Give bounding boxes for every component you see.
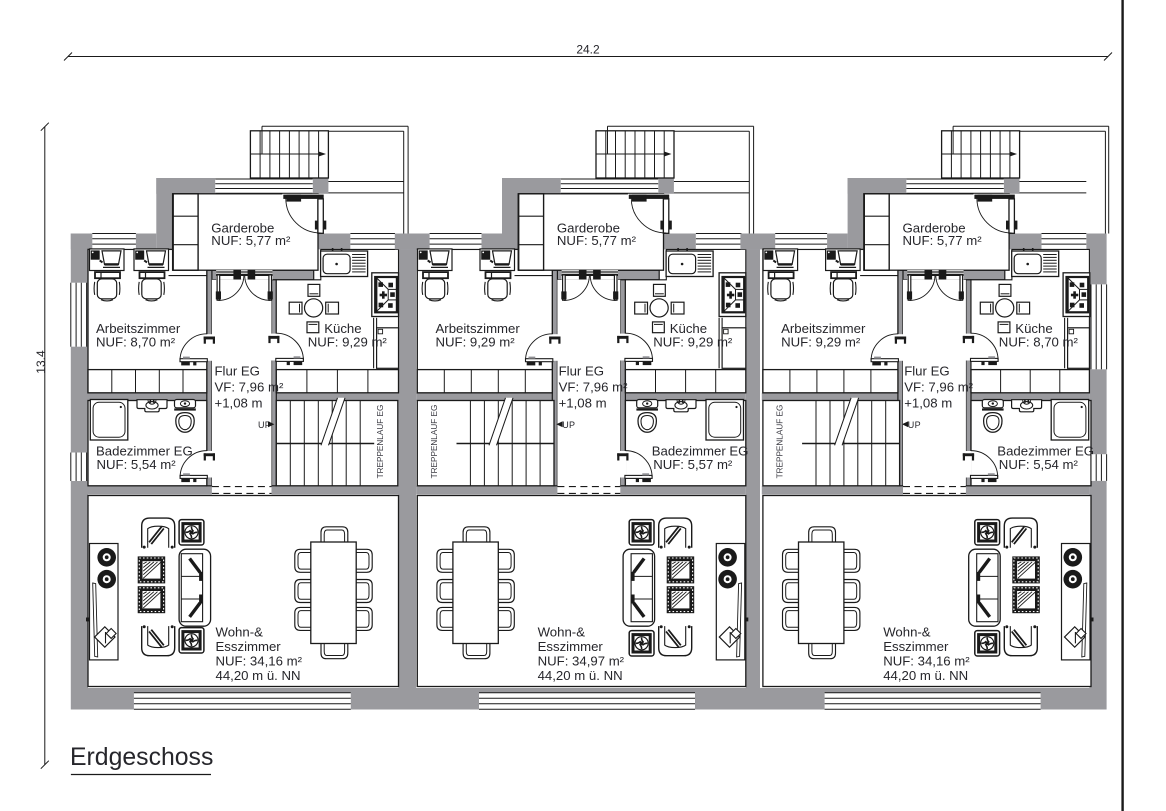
svg-text:44,20 m ü. NN: 44,20 m ü. NN	[538, 668, 623, 683]
svg-text:Esszimmer: Esszimmer	[538, 639, 604, 654]
svg-text:Wohn-&: Wohn-&	[538, 625, 586, 640]
svg-text:TREPPENLAUF EG: TREPPENLAUF EG	[776, 405, 785, 479]
svg-text:NUF: 9,29 m²: NUF: 9,29 m²	[781, 335, 861, 350]
svg-text:UP: UP	[908, 420, 921, 430]
svg-text:NUF: 8,70 m²: NUF: 8,70 m²	[96, 335, 176, 350]
svg-text:Esszimmer: Esszimmer	[883, 639, 949, 654]
svg-text:NUF: 9,29 m²: NUF: 9,29 m²	[436, 335, 516, 350]
svg-text:NUF: 34,16 m²: NUF: 34,16 m²	[883, 653, 970, 668]
svg-text:+1,08 m: +1,08 m	[559, 396, 607, 411]
svg-text:Flur EG: Flur EG	[559, 364, 604, 379]
svg-text:Flur EG: Flur EG	[904, 364, 949, 379]
svg-text:NUF: 5,54 m²: NUF: 5,54 m²	[97, 457, 177, 472]
svg-text:VF: 7,96 m²: VF: 7,96 m²	[904, 380, 973, 395]
svg-text:Wohn-&: Wohn-&	[883, 625, 931, 640]
svg-text:VF: 7,96 m²: VF: 7,96 m²	[215, 380, 284, 395]
svg-text:Esszimmer: Esszimmer	[216, 639, 282, 654]
svg-text:Erdgeschoss: Erdgeschoss	[70, 744, 213, 771]
svg-text:Flur EG: Flur EG	[215, 364, 260, 379]
svg-text:UP: UP	[562, 420, 575, 430]
svg-text:NUF: 9,29 m²: NUF: 9,29 m²	[308, 335, 388, 350]
svg-text:+1,08 m: +1,08 m	[215, 396, 263, 411]
svg-text:NUF: 34,97 m²: NUF: 34,97 m²	[538, 653, 625, 668]
svg-text:NUF: 9,29 m²: NUF: 9,29 m²	[653, 335, 733, 350]
svg-text:NUF: 5,54 m²: NUF: 5,54 m²	[999, 457, 1079, 472]
svg-text:NUF: 34,16 m²: NUF: 34,16 m²	[216, 653, 303, 668]
svg-text:44,20 m ü. NN: 44,20 m ü. NN	[216, 668, 301, 683]
svg-text:TREPPENLAUF EG: TREPPENLAUF EG	[430, 405, 439, 479]
svg-text:NUF: 5,77 m²: NUF: 5,77 m²	[903, 233, 983, 248]
svg-text:Wohn-&: Wohn-&	[216, 625, 264, 640]
svg-text:13.4: 13.4	[34, 350, 48, 374]
svg-text:24.2: 24.2	[576, 43, 600, 57]
svg-text:44,20 m ü. NN: 44,20 m ü. NN	[883, 668, 968, 683]
svg-text:NUF: 5,57 m²: NUF: 5,57 m²	[653, 457, 733, 472]
svg-text:NUF: 5,77 m²: NUF: 5,77 m²	[211, 233, 291, 248]
svg-text:NUF: 8,70 m²: NUF: 8,70 m²	[999, 335, 1079, 350]
svg-text:NUF: 5,77 m²: NUF: 5,77 m²	[557, 233, 637, 248]
svg-text:+1,08 m: +1,08 m	[904, 396, 952, 411]
svg-text:VF: 7,96 m²: VF: 7,96 m²	[559, 380, 628, 395]
svg-text:TREPPENLAUF EG: TREPPENLAUF EG	[376, 405, 385, 479]
